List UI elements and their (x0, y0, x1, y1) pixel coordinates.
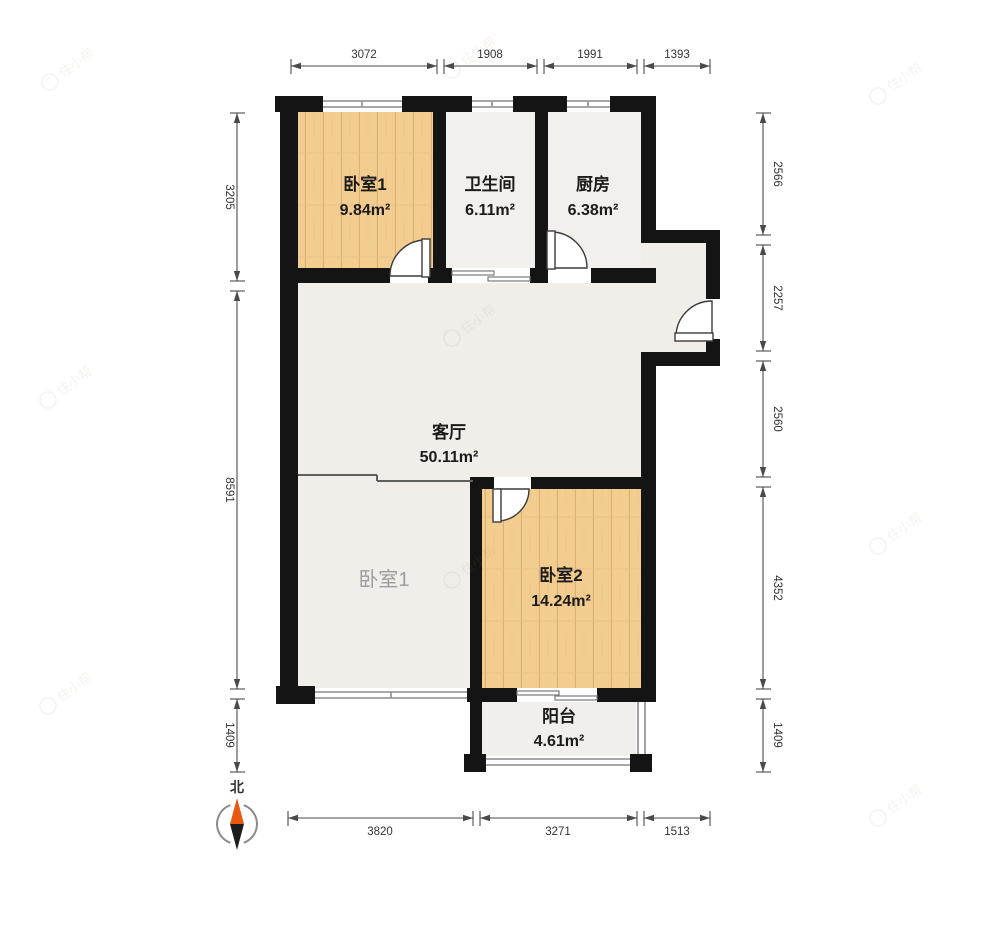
dim-left-2: 8591 (223, 291, 245, 689)
wall-segment (467, 688, 517, 702)
door-panel-kitchen (547, 231, 555, 269)
wall-segment (402, 96, 472, 112)
watermark: 住小帮 (39, 46, 97, 94)
kitchen-area: 6.38m² (568, 202, 619, 219)
dim-value: 3271 (545, 826, 571, 838)
wall-bottom-corner (276, 686, 315, 704)
watermark: 住小帮 (37, 670, 95, 718)
wall-bedroom2-top (531, 477, 641, 489)
dim-arrow (760, 679, 766, 689)
door-panel-bedroom2 (493, 489, 501, 522)
dim-value: 3205 (223, 184, 235, 210)
dim-arrow (760, 699, 766, 709)
dimensions-right: 2566 2257 2560 4352 (756, 113, 783, 772)
wall-right-lower (641, 352, 656, 702)
dim-arrow (427, 63, 437, 69)
dim-value: 1393 (664, 49, 690, 61)
bedroom2-area: 14.24m² (531, 593, 591, 610)
wall-balcony-corner (630, 754, 652, 772)
door-panel-entry (675, 333, 713, 341)
dim-right-2: 2257 (756, 245, 783, 351)
dim-arrow (760, 341, 766, 351)
wall-right-upper (641, 96, 656, 243)
door-opening-kitchen (548, 268, 591, 283)
watermark: 住小帮 (867, 510, 925, 558)
wall-segment (513, 96, 567, 112)
dim-value: 2560 (771, 406, 783, 432)
wall-entry-right-upper (706, 243, 720, 299)
dim-value: 1991 (577, 49, 603, 61)
window-bathroom (472, 96, 513, 112)
dim-left-1: 3205 (223, 113, 245, 281)
dim-top-2: 1908 (444, 49, 537, 74)
dim-right-1: 2566 (756, 113, 783, 235)
dim-arrow (463, 815, 473, 821)
living-label: 客厅 (431, 422, 466, 442)
dim-arrow (288, 815, 298, 821)
wall-balcony-left (470, 702, 482, 758)
watermark-text: 住小帮 (54, 364, 95, 399)
watermark: 住小帮 (867, 60, 925, 108)
wall-bathroom-kitchen (535, 112, 548, 283)
dim-arrow (700, 63, 710, 69)
compass-north-label: 北 (230, 779, 244, 795)
sliding-door-leaf (452, 271, 494, 275)
wall-left (280, 96, 298, 704)
watermark-logo-icon (37, 695, 59, 717)
dimensions-top: 3072 1908 1991 1393 (291, 49, 710, 74)
wall-segment (428, 268, 452, 283)
window-kitchen (567, 96, 610, 112)
sliding-door-leaf (488, 277, 530, 281)
dim-arrow (234, 113, 240, 123)
dim-arrow (644, 815, 654, 821)
window-band (486, 756, 630, 768)
watermark-logo-icon (37, 389, 59, 411)
watermark-text: 住小帮 (884, 510, 925, 545)
dim-bottom-2: 3271 (480, 811, 637, 838)
watermark: 住小帮 (867, 782, 925, 830)
dim-arrow (627, 63, 637, 69)
compass-needle-north-icon (230, 798, 244, 824)
watermark-text: 住小帮 (54, 670, 95, 705)
dim-arrow (760, 467, 766, 477)
door-opening-bedroom2 (494, 477, 531, 489)
living-area: 50.11m² (420, 449, 479, 466)
wall-segment (298, 268, 390, 283)
bathroom-label: 卫生间 (465, 174, 516, 194)
watermark: 住小帮 (37, 364, 95, 412)
dim-arrow (234, 679, 240, 689)
dim-right-5: 1409 (756, 699, 783, 772)
dim-arrow (234, 762, 240, 772)
dim-left-3: 1409 (223, 699, 245, 772)
dim-value: 8591 (223, 477, 235, 503)
bedroom1-lower-label: 卧室1 (358, 568, 409, 591)
wall-segment (597, 688, 656, 702)
wall-entry-jut (641, 230, 720, 243)
balcony-area: 4.61m² (534, 733, 585, 750)
bedroom2-label: 卧室2 (539, 565, 582, 585)
bedroom1-top-area: 9.84m² (340, 202, 391, 219)
balcony-label: 阳台 (542, 706, 576, 726)
wall-segment (530, 268, 548, 283)
dim-arrow (234, 699, 240, 709)
window-balcony-right (636, 702, 648, 754)
compass-ring (217, 805, 230, 843)
dim-value: 1409 (223, 722, 235, 748)
dim-value: 1513 (664, 826, 690, 838)
kitchen-label: 厨房 (576, 174, 610, 194)
window-balcony-bottom (486, 756, 630, 768)
dim-value: 2566 (771, 161, 783, 187)
wall-bedroom1-bathroom (433, 112, 446, 283)
wall-bedroom2-left (470, 477, 482, 702)
dimensions-left: 3205 8591 1409 (223, 113, 245, 772)
compass-ring (244, 805, 257, 843)
dim-right-3: 2560 (756, 361, 783, 477)
dim-arrow (234, 291, 240, 301)
watermark-logo-icon (867, 535, 889, 557)
watermark-logo-icon (867, 85, 889, 107)
dim-bottom-1: 3820 (288, 811, 473, 838)
wall-balcony-corner (464, 754, 486, 772)
dim-value: 3820 (367, 826, 393, 838)
dim-arrow (700, 815, 710, 821)
dim-top-3: 1991 (544, 49, 637, 74)
dim-top-4: 1393 (644, 49, 710, 74)
dim-arrow (234, 271, 240, 281)
bathroom-floor (446, 112, 535, 283)
dim-value: 4352 (771, 575, 783, 601)
dim-arrow (544, 63, 554, 69)
bedroom1-top-label: 卧室1 (343, 174, 386, 194)
floorplan-canvas: 卧室1 9.84m² 卫生间 6.11m² 厨房 6.38m² 客厅 50.11… (0, 0, 1000, 937)
dim-arrow (760, 762, 766, 772)
window-bedroom1-top (323, 96, 402, 112)
watermark-logo-icon (867, 807, 889, 829)
dim-arrow (527, 63, 537, 69)
dim-arrow (760, 361, 766, 371)
floorplan-svg: 卧室1 9.84m² 卫生间 6.11m² 厨房 6.38m² 客厅 50.11… (0, 0, 1000, 937)
dim-arrow (760, 113, 766, 123)
watermark-text: 住小帮 (884, 782, 925, 817)
window-bedroom1-lower (315, 688, 467, 702)
dim-arrow (480, 815, 490, 821)
dimensions-bottom: 3820 3271 1513 (288, 811, 710, 838)
dim-value: 1409 (771, 722, 783, 748)
watermark-text: 住小帮 (884, 60, 925, 95)
watermark-text: 住小帮 (56, 46, 97, 81)
dim-arrow (291, 63, 301, 69)
compass: 北 (217, 779, 257, 850)
bathroom-area: 6.11m² (465, 202, 515, 219)
dim-arrow (760, 487, 766, 497)
dim-value: 2257 (771, 285, 783, 311)
dim-bottom-3: 1513 (644, 811, 710, 838)
dim-arrow (760, 245, 766, 255)
dim-right-4: 4352 (756, 487, 783, 689)
door-panel-bedroom1 (422, 239, 430, 277)
dim-value: 3072 (351, 49, 377, 61)
dim-top-1: 3072 (291, 49, 437, 74)
dim-arrow (644, 63, 654, 69)
sliding-door-leaf (517, 691, 559, 695)
watermark-logo-icon (39, 71, 61, 93)
dim-arrow (760, 225, 766, 235)
wall-segment (591, 268, 656, 283)
dim-arrow (627, 815, 637, 821)
compass-needle-south-icon (230, 824, 244, 850)
sliding-door-leaf (555, 696, 597, 700)
